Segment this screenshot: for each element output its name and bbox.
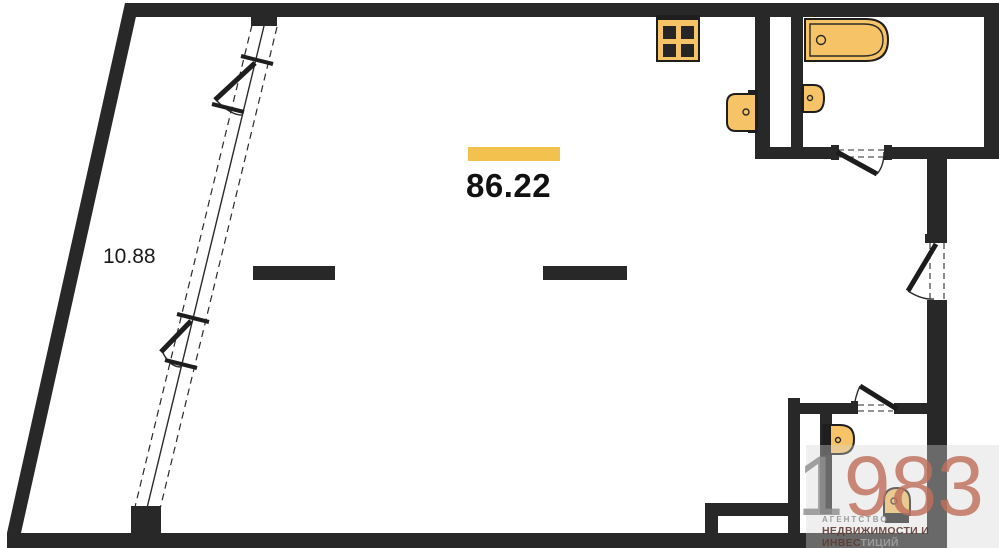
wall-stub-right xyxy=(543,266,627,280)
main-area-label: 86.22 xyxy=(466,167,551,205)
wall-doorpost xyxy=(884,145,892,160)
stove-icon xyxy=(656,15,700,61)
window-sash xyxy=(215,63,255,100)
bathtub-icon xyxy=(805,19,888,61)
door-leaf xyxy=(837,152,877,174)
stove-burner xyxy=(663,26,676,39)
door-leaf xyxy=(908,244,936,291)
wall-bathroom-bottom-right xyxy=(889,147,999,159)
door-arc xyxy=(877,152,884,174)
stove-burner xyxy=(681,44,694,57)
watermark-tagline-gray: ТИЦИЙ xyxy=(861,537,899,548)
wall-wc-top-right xyxy=(894,403,928,414)
wall-glazing-post-bottom xyxy=(131,506,161,534)
watermark-agency-line: АГЕНТСТВО xyxy=(822,515,889,524)
wall-right-mid-upper xyxy=(927,159,947,242)
wall-stub-left xyxy=(253,266,335,280)
sink-bowl xyxy=(727,94,756,131)
bathtub-body xyxy=(805,19,888,61)
sink-bowl xyxy=(803,85,824,112)
stove-burner xyxy=(663,44,676,57)
wall-bathroom-bottom-left xyxy=(755,147,836,159)
floorplan-page: 86.22 10.88 1983 АГЕНТСТВО НЕДВИЖИМОСТИ … xyxy=(0,0,999,548)
wall-right-upper xyxy=(984,3,999,159)
wall-kitchen-divider xyxy=(755,15,770,159)
stove-burner xyxy=(681,26,694,39)
watermark-tagline: НЕДВИЖИМОСТИ И ИНВЕСТИЦИЙ xyxy=(822,525,999,548)
sink-icon xyxy=(801,85,824,112)
glazing-center-line xyxy=(147,26,264,508)
wall-wc-top-left xyxy=(788,403,857,414)
balcony-area-label: 10.88 xyxy=(103,245,156,269)
sink-icon xyxy=(727,90,758,133)
highlighted-wall-segment xyxy=(468,147,560,161)
wall-glazing-post-top xyxy=(251,3,277,26)
wall-niche-vertical xyxy=(705,503,718,533)
